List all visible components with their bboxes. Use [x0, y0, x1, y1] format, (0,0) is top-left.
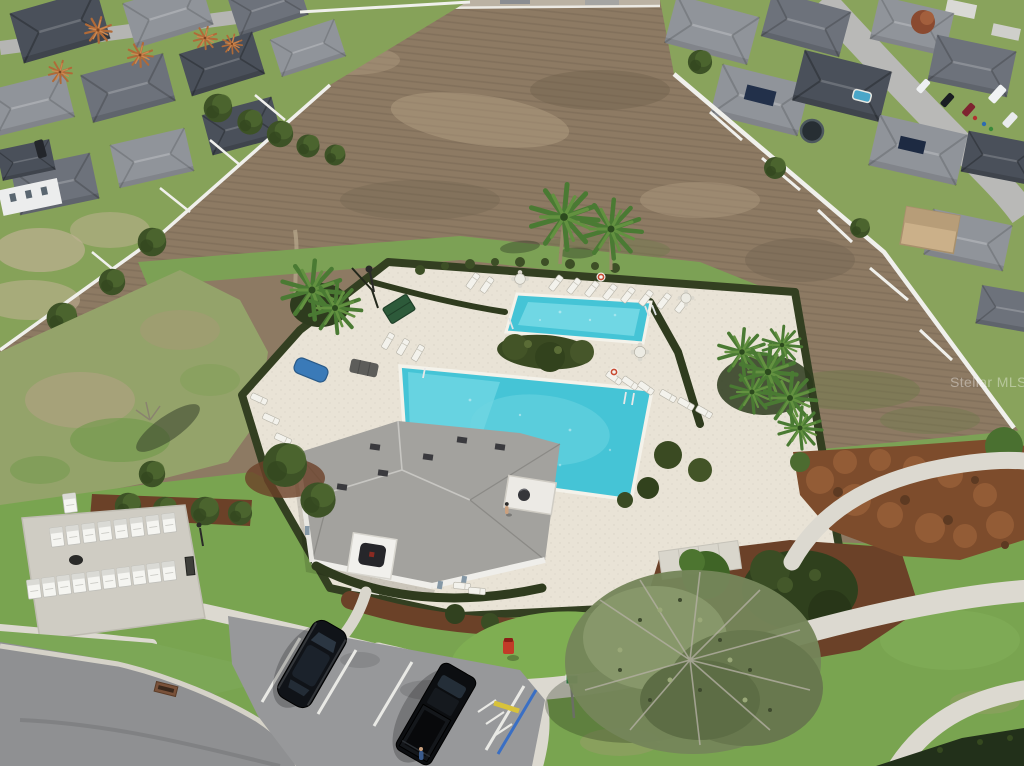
trash-cylinder	[518, 489, 530, 501]
trampoline	[801, 120, 823, 142]
lamp-head	[366, 266, 373, 273]
dark-object	[69, 555, 83, 565]
trash-bin	[989, 127, 993, 131]
entry-portico	[347, 533, 397, 579]
life-ring	[610, 368, 619, 377]
hydrant-cap	[504, 638, 513, 642]
life-ring	[597, 273, 606, 282]
trash-bin	[973, 116, 977, 120]
person-near-truck	[419, 747, 424, 760]
aerial-photo	[0, 0, 1024, 766]
tree	[764, 157, 786, 179]
red-tree-highlight	[920, 11, 934, 25]
entry-sign	[369, 552, 375, 558]
info-board	[185, 557, 195, 576]
trash-bin	[982, 122, 986, 126]
aerial-photo-stage: Stellar MLS	[0, 0, 1024, 766]
window	[305, 526, 310, 535]
fire-hydrant	[503, 640, 514, 654]
tree	[850, 218, 870, 238]
tree	[688, 50, 712, 74]
